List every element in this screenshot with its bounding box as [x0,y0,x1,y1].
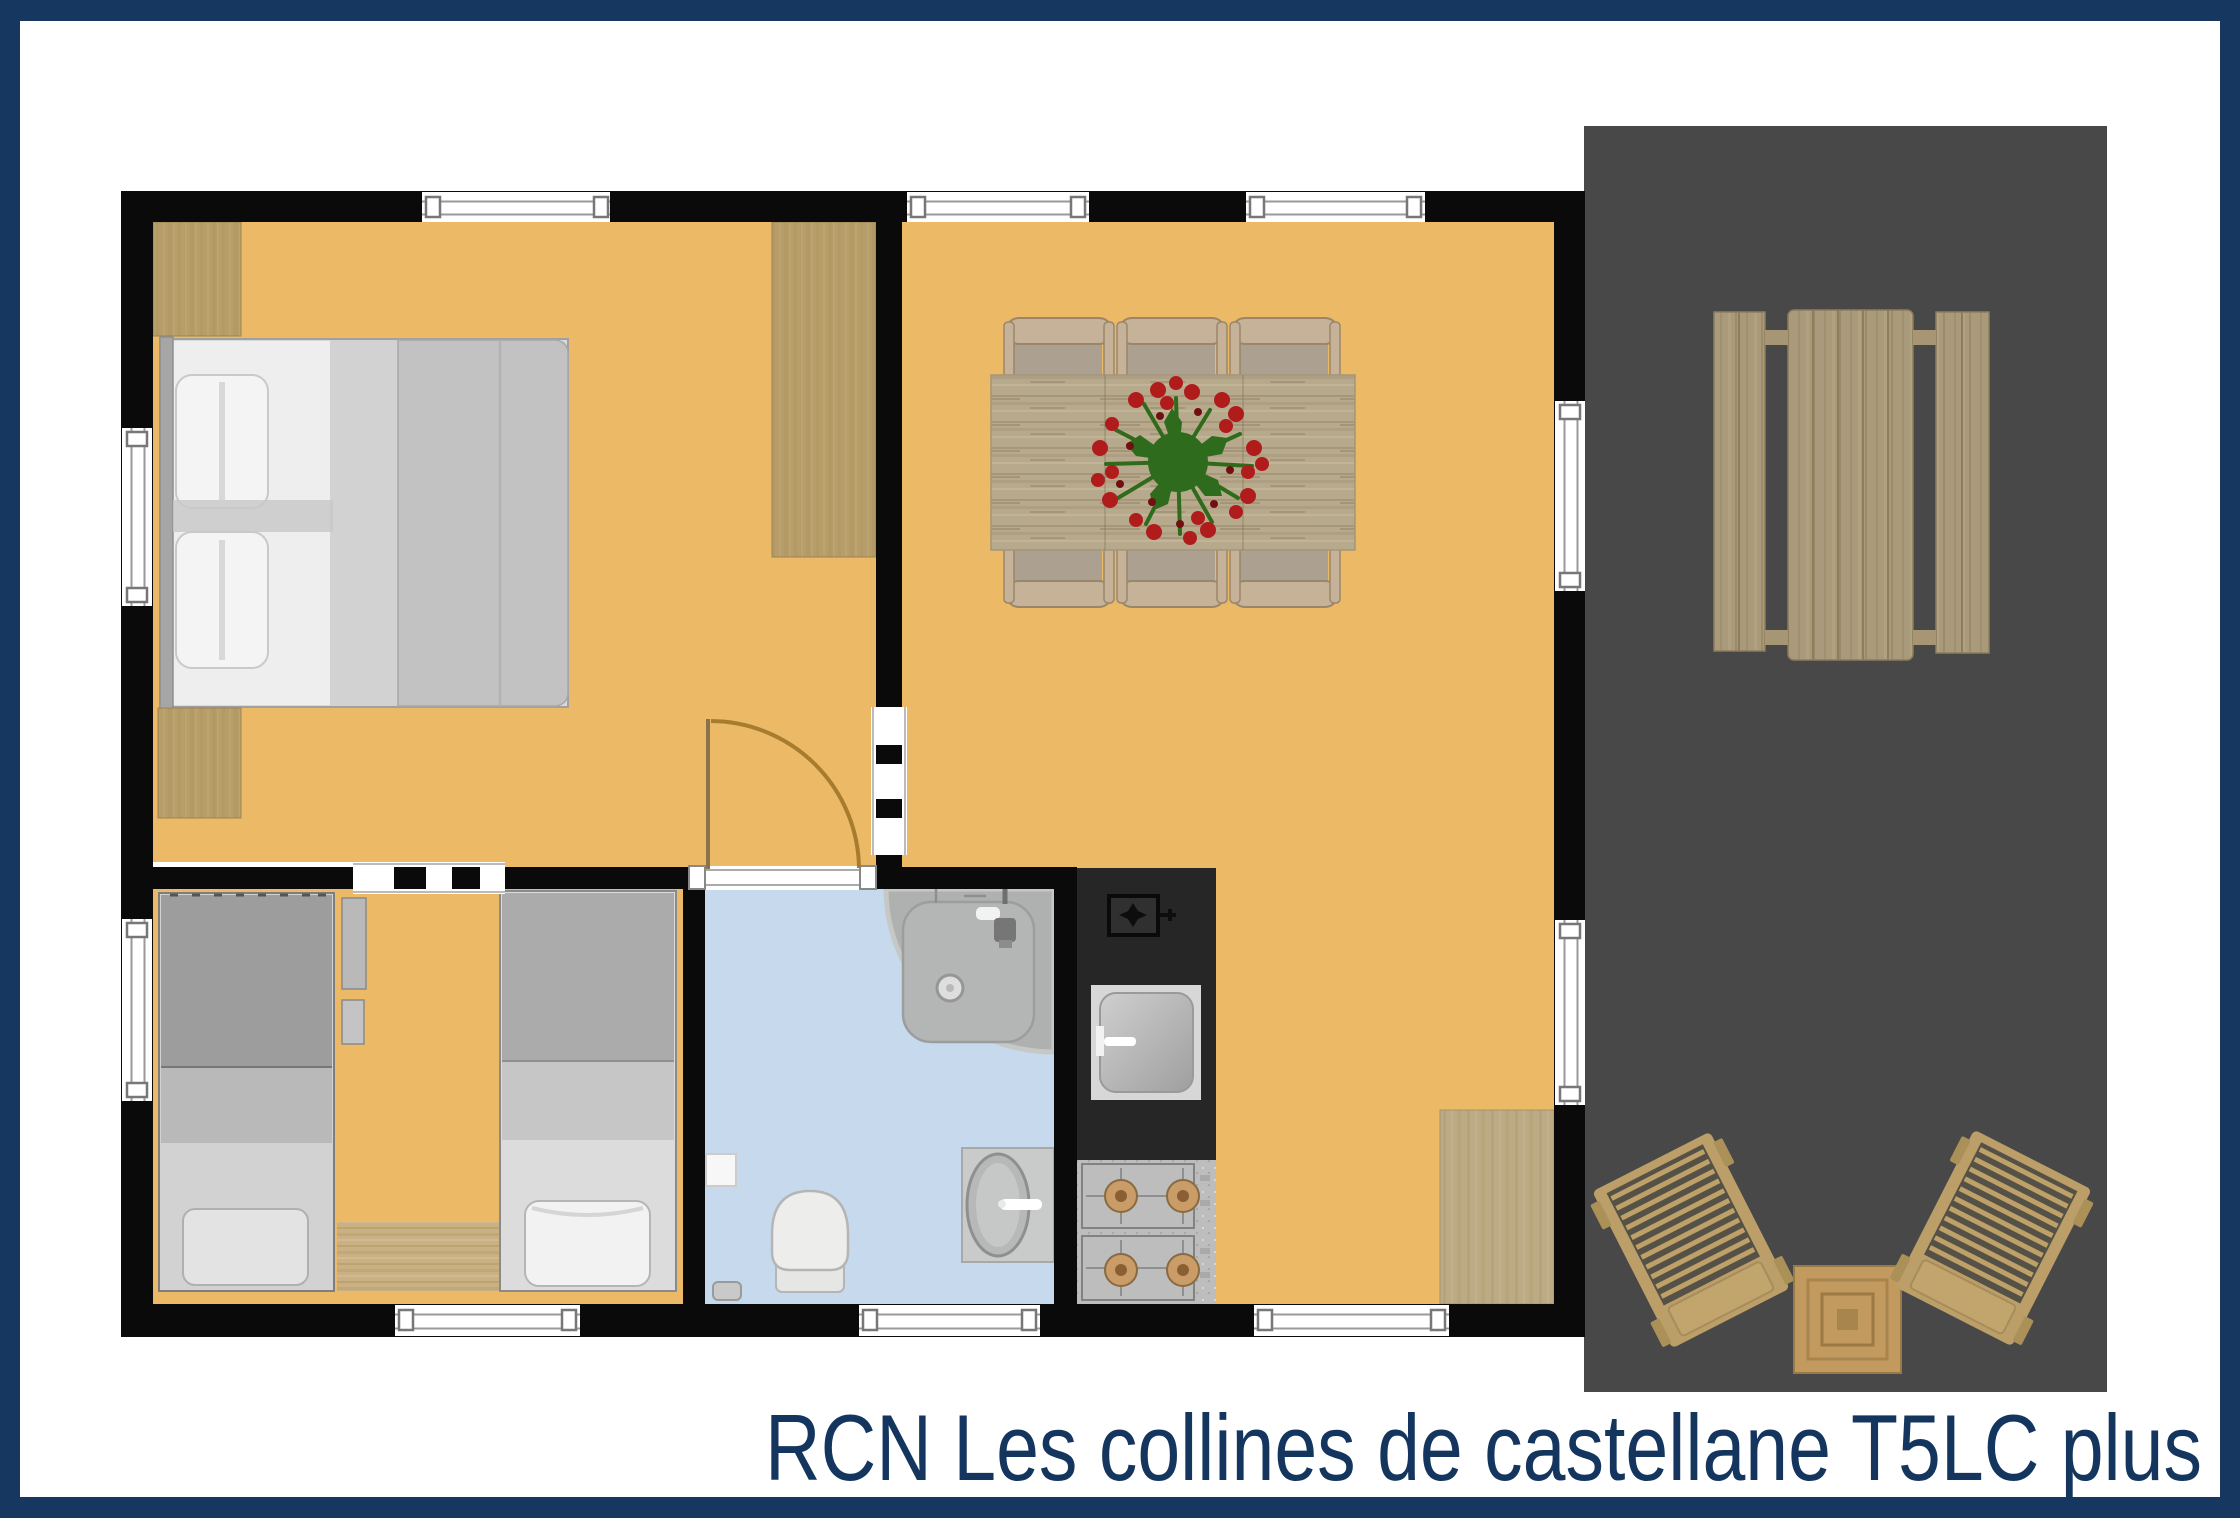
svg-text:RCN Les collines de castellane: RCN Les collines de castellane T5LC plus [765,1395,2202,1500]
